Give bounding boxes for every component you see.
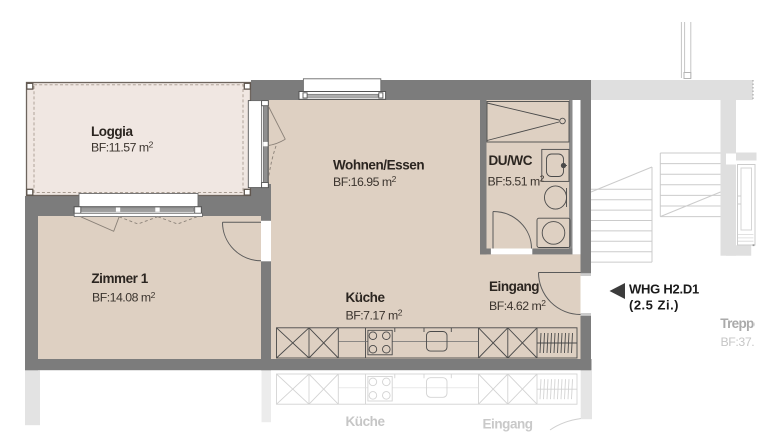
svg-text:BF:7.17 m2: BF:7.17 m2 [346,308,403,323]
svg-text:Küche: Küche [346,414,386,429]
svg-text:WHG H2.D1: WHG H2.D1 [629,282,699,297]
svg-text:Küche: Küche [346,290,386,305]
svg-text:BF:14.08 m2: BF:14.08 m2 [92,290,156,305]
svg-text:BF:16.95 m2: BF:16.95 m2 [333,174,397,189]
svg-text:DU/WC: DU/WC [489,153,533,168]
svg-text:Zimmer 1: Zimmer 1 [91,271,148,286]
svg-text:(2.5 Zi.): (2.5 Zi.) [629,298,679,313]
svg-text:BF:5.51 m2: BF:5.51 m2 [488,174,545,189]
svg-text:Loggia: Loggia [91,124,133,139]
svg-text:Eingang: Eingang [483,417,533,432]
svg-text:BF:4.62 m2: BF:4.62 m2 [489,298,546,313]
svg-text:BF:11.57 m2: BF:11.57 m2 [91,140,154,155]
svg-text:Wohnen/Essen: Wohnen/Essen [333,157,424,172]
svg-text:Eingang: Eingang [489,279,539,294]
